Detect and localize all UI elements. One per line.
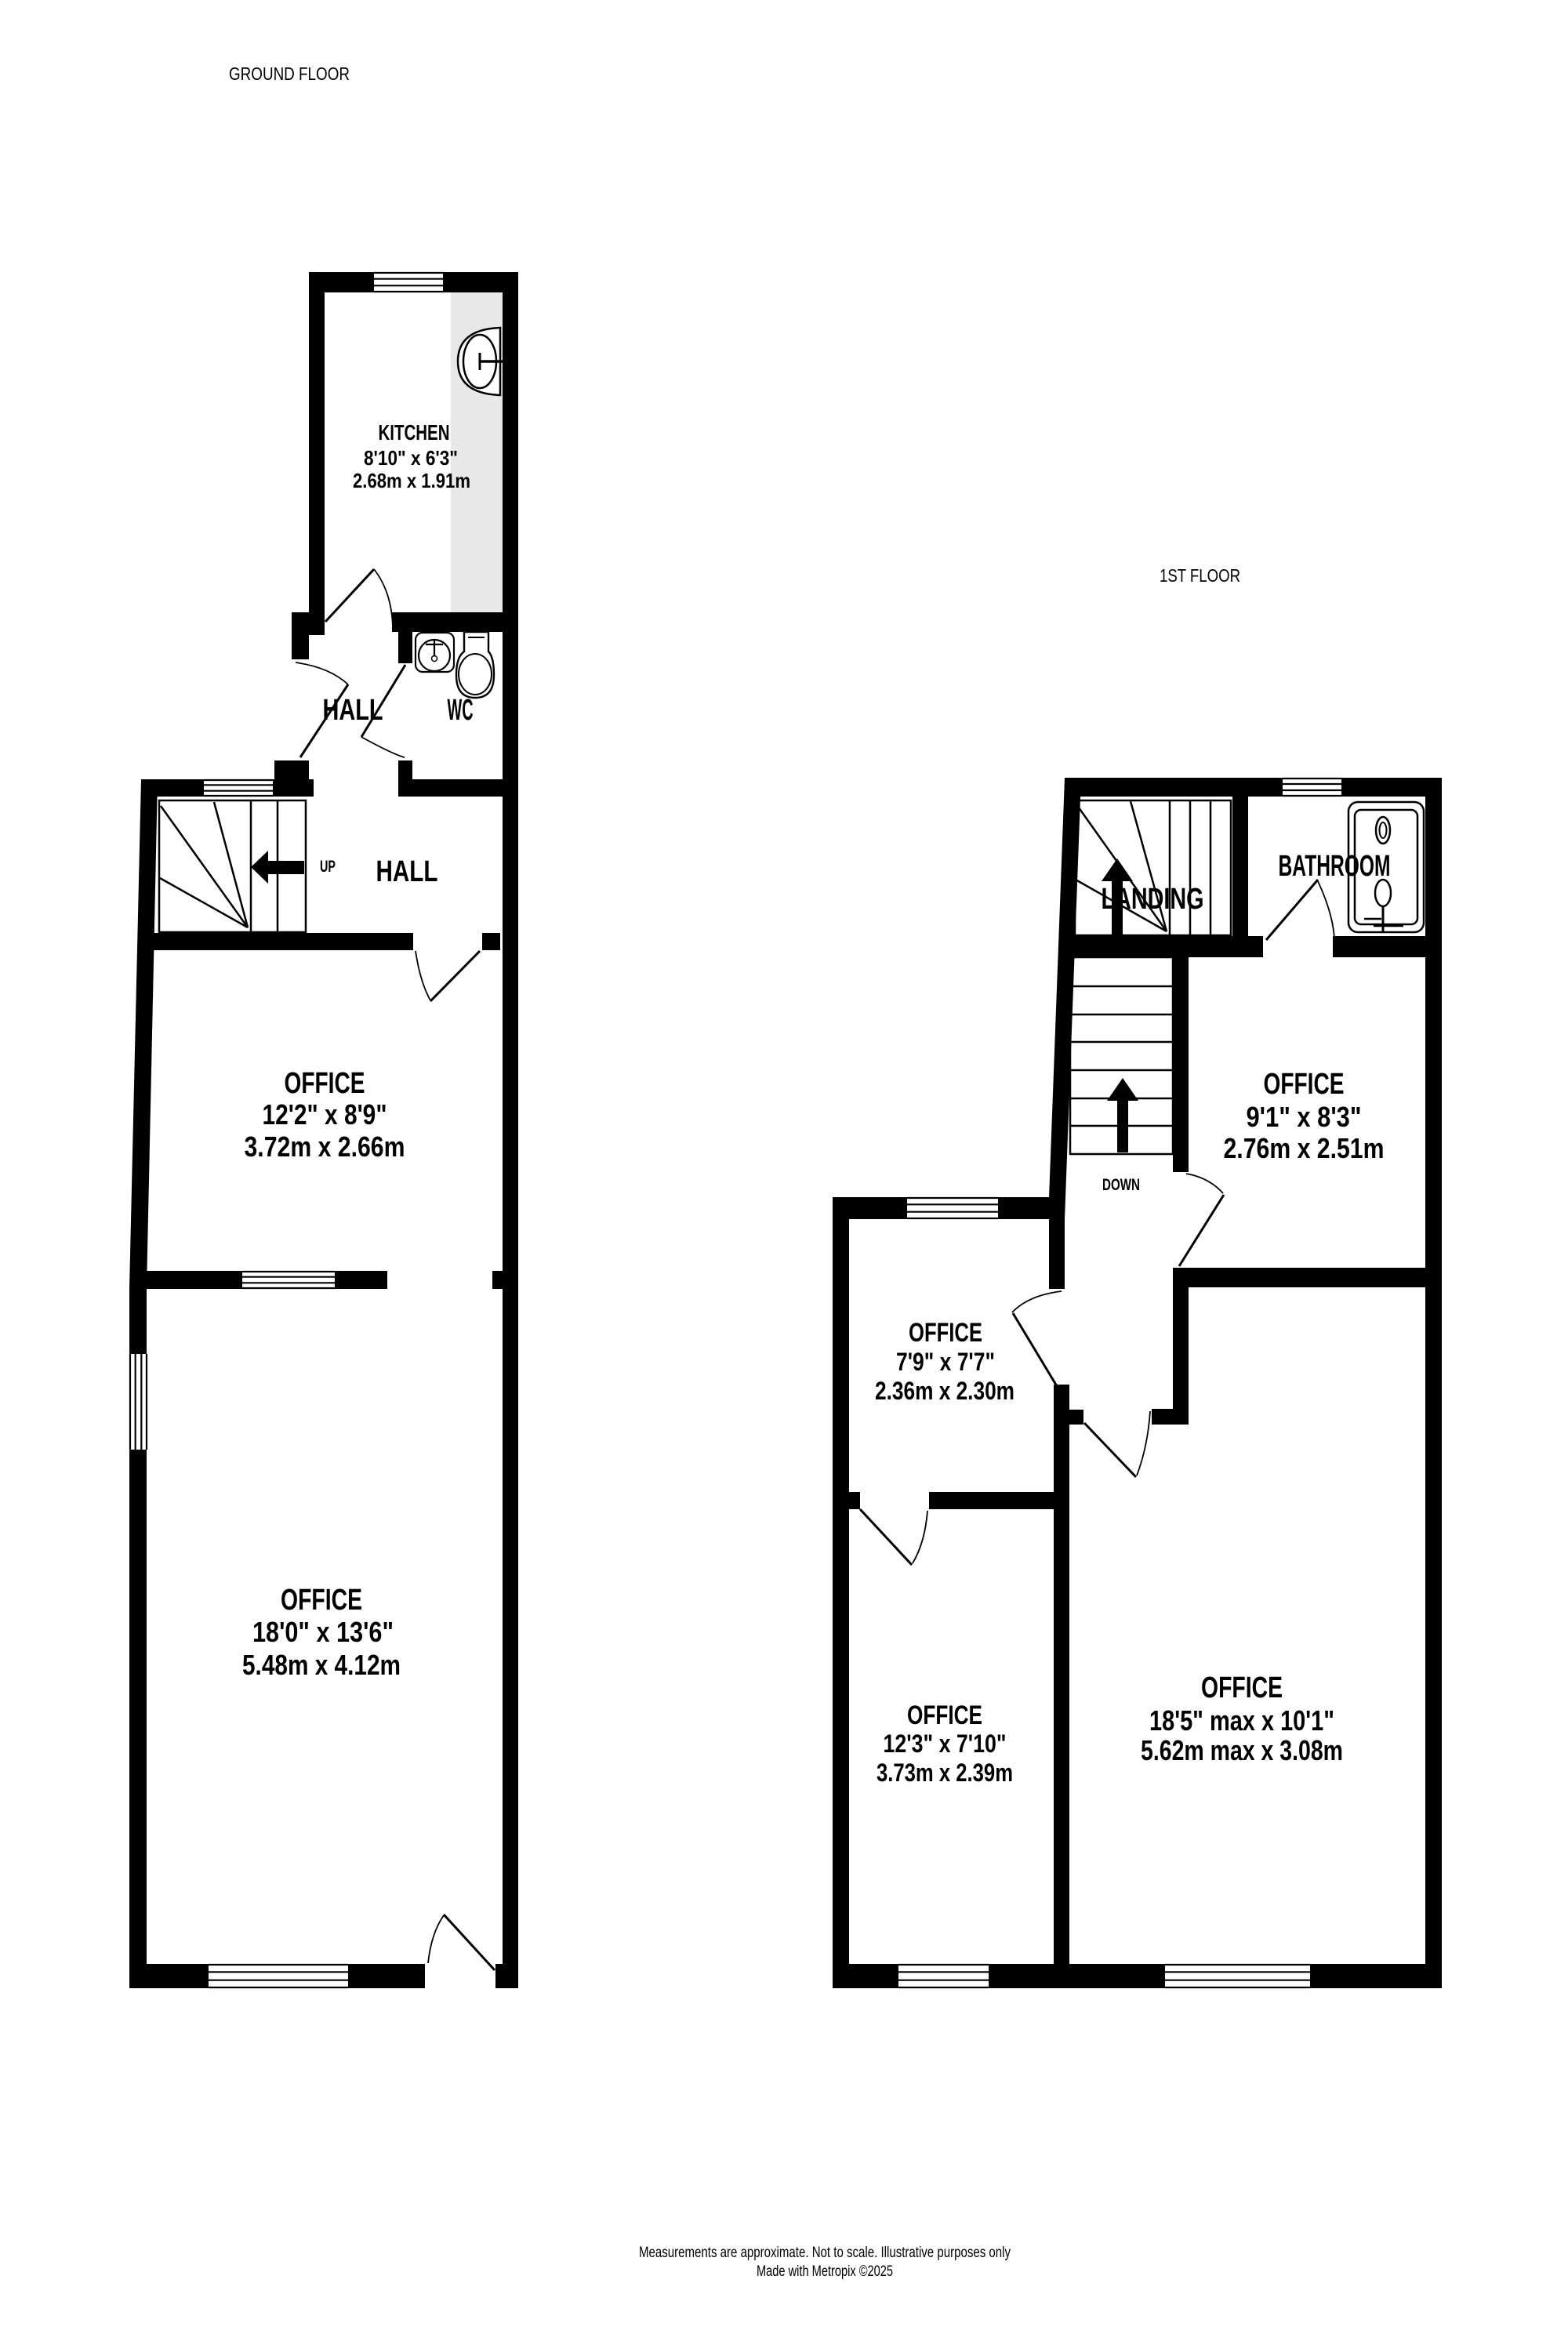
- svg-text:GROUND FLOOR: GROUND FLOOR: [229, 64, 350, 84]
- svg-text:Made with Metropix ©2025: Made with Metropix ©2025: [757, 2263, 893, 2280]
- svg-text:5.62m max x 3.08m: 5.62m max x 3.08m: [1141, 1734, 1343, 1766]
- svg-text:HALL: HALL: [323, 694, 383, 727]
- svg-text:1ST FLOOR: 1ST FLOOR: [1160, 565, 1240, 586]
- svg-text:DOWN: DOWN: [1102, 1176, 1140, 1194]
- svg-text:HALL: HALL: [376, 855, 438, 888]
- svg-text:OFFICE: OFFICE: [907, 1700, 982, 1730]
- svg-text:12'2" x 8'9": 12'2" x 8'9": [263, 1098, 387, 1131]
- svg-text:9'1" x 8'3": 9'1" x 8'3": [1247, 1101, 1362, 1133]
- svg-text:18'0" x 13'6": 18'0" x 13'6": [252, 1616, 394, 1648]
- svg-text:BATHROOM: BATHROOM: [1279, 850, 1391, 883]
- svg-text:2.68m x 1.91m: 2.68m x 1.91m: [353, 469, 470, 492]
- svg-text:LANDING: LANDING: [1102, 883, 1204, 916]
- svg-text:7'9" x 7'7": 7'9" x 7'7": [896, 1348, 995, 1376]
- svg-text:5.48m x 4.12m: 5.48m x 4.12m: [242, 1649, 401, 1681]
- svg-text:OFFICE: OFFICE: [281, 1584, 362, 1617]
- svg-text:UP: UP: [320, 858, 336, 876]
- svg-text:18'5" max x 10'1": 18'5" max x 10'1": [1149, 1704, 1334, 1737]
- svg-text:KITCHEN: KITCHEN: [379, 420, 450, 445]
- svg-text:12'3" x 7'10": 12'3" x 7'10": [884, 1730, 1007, 1758]
- svg-text:OFFICE: OFFICE: [1264, 1068, 1345, 1101]
- svg-text:WC: WC: [448, 694, 474, 727]
- svg-text:2.76m x 2.51m: 2.76m x 2.51m: [1224, 1132, 1385, 1164]
- svg-text:3.73m x 2.39m: 3.73m x 2.39m: [877, 1759, 1013, 1787]
- svg-text:8'10" x 6'3": 8'10" x 6'3": [364, 446, 458, 470]
- svg-text:2.36m x 2.30m: 2.36m x 2.30m: [875, 1377, 1014, 1405]
- svg-text:OFFICE: OFFICE: [909, 1318, 982, 1348]
- svg-text:OFFICE: OFFICE: [1201, 1671, 1283, 1704]
- svg-text:Measurements are approximate.: Measurements are approximate. Not to sca…: [639, 2245, 1011, 2261]
- svg-text:3.72m x 2.66m: 3.72m x 2.66m: [245, 1131, 405, 1163]
- svg-text:OFFICE: OFFICE: [285, 1067, 365, 1100]
